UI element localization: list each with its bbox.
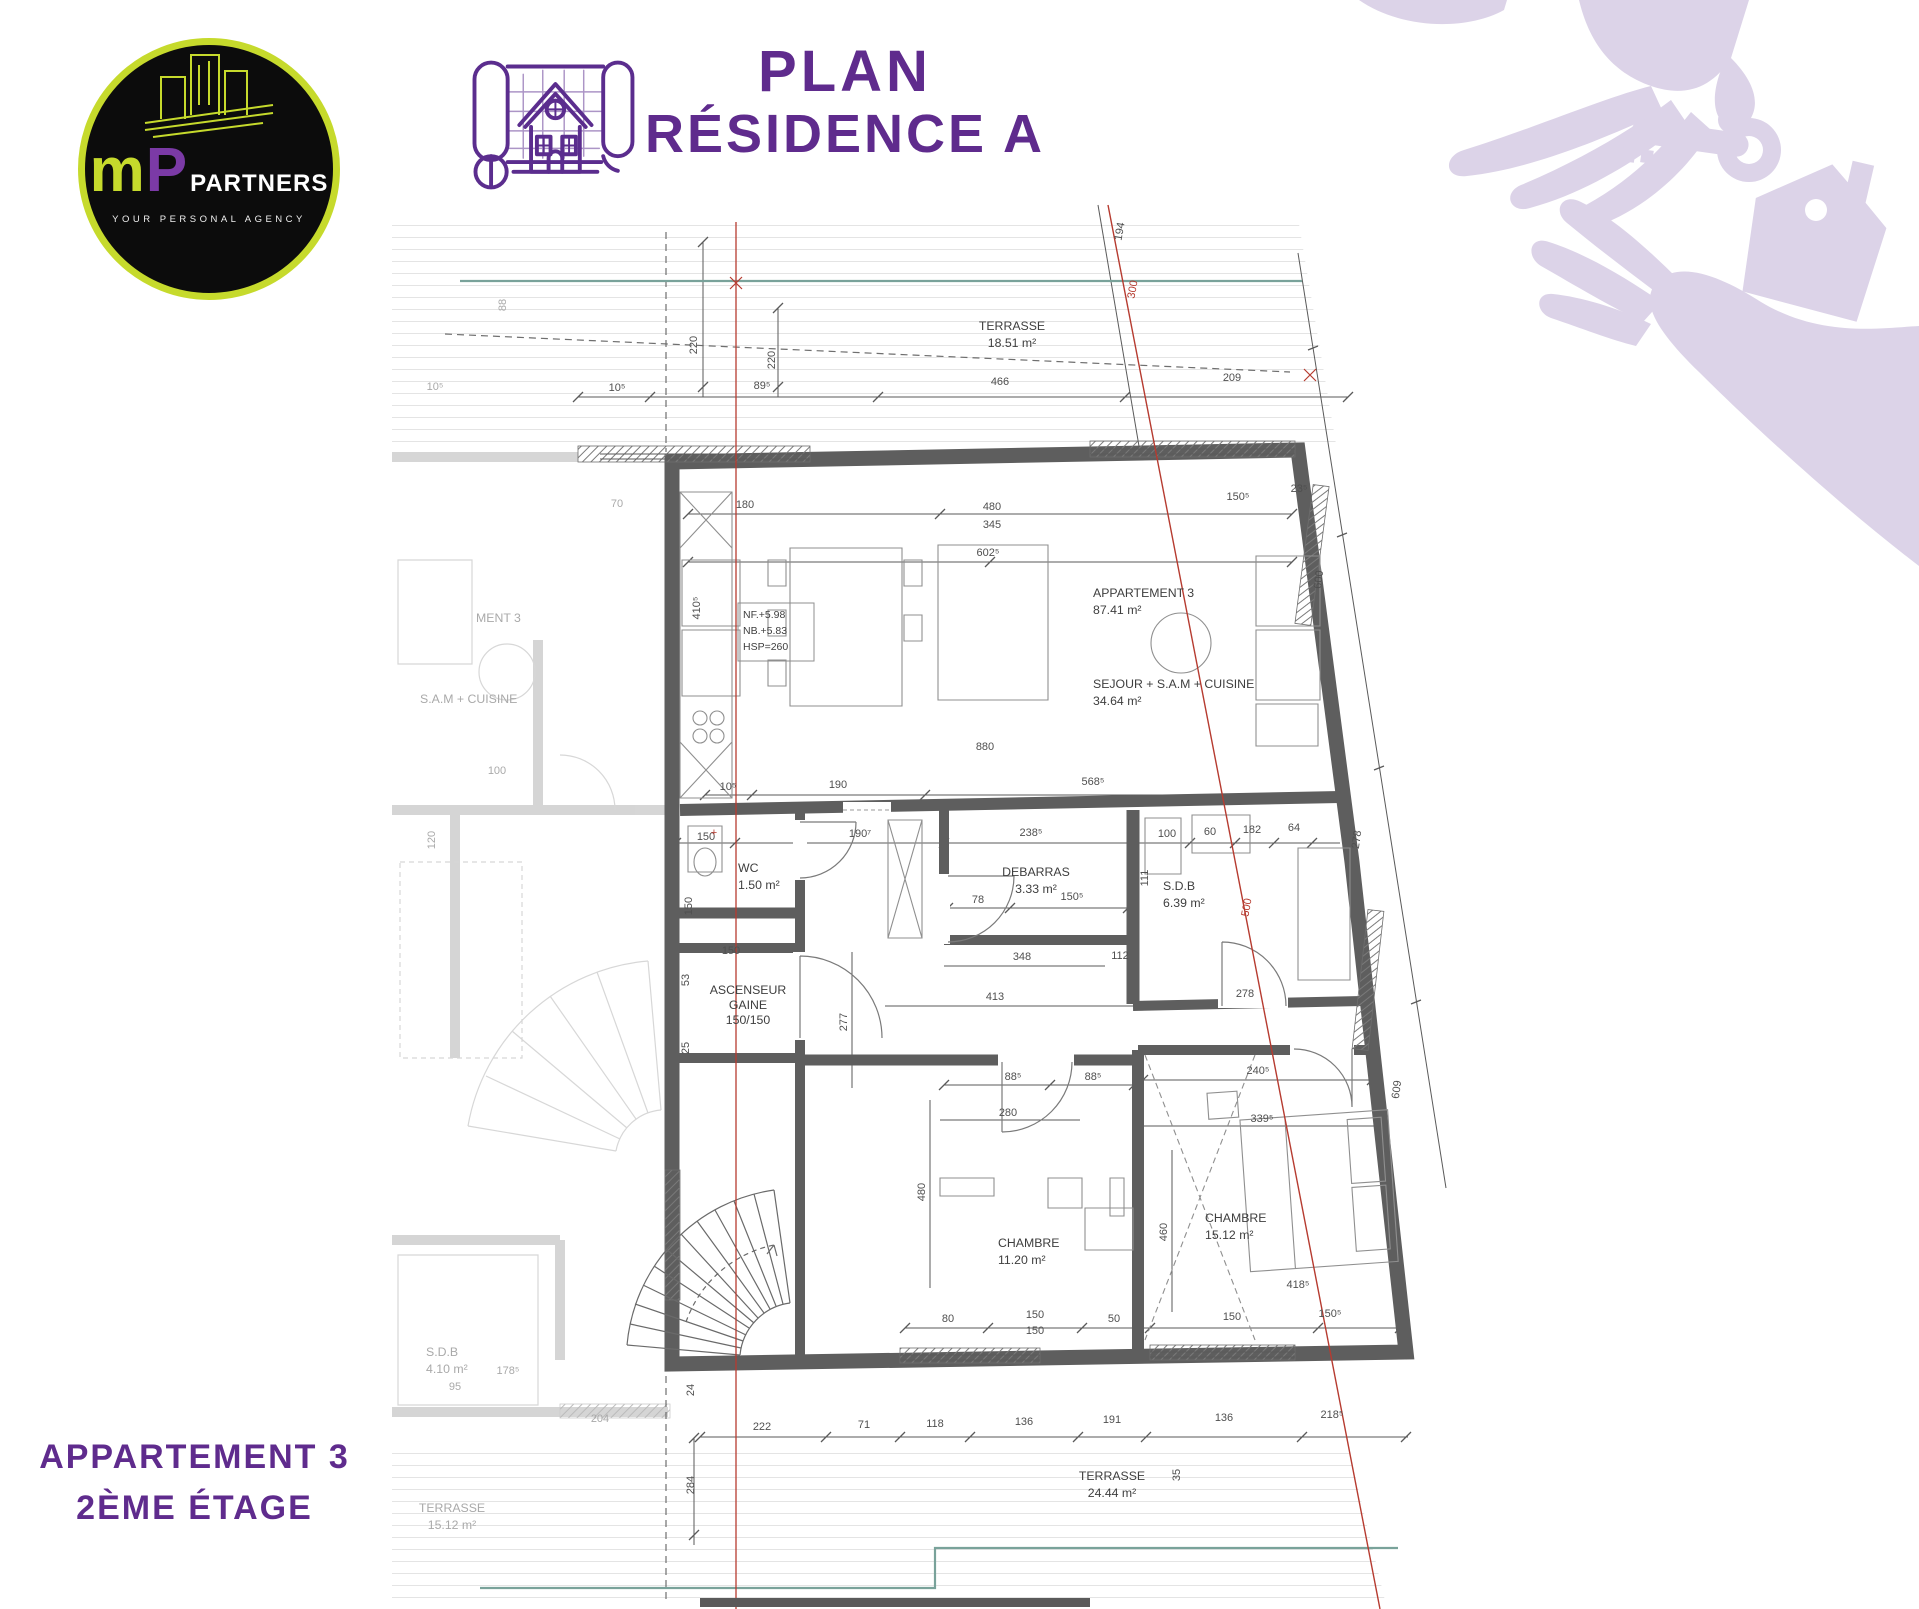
dim-label: 220 (688, 336, 700, 354)
title-line-2: RÉSIDENCE A (620, 103, 1070, 165)
apartment-caption: APPARTEMENT 3 2ÈME ÉTAGE (22, 1438, 367, 1528)
plan-labels: 10⁵89⁵4662092202201943008810⁵18048034560… (419, 221, 1404, 1532)
logo-building-icon (139, 45, 279, 141)
dim-label: 10⁵ (427, 381, 444, 393)
dim-label: 460 (1158, 1223, 1170, 1241)
room-label: ASCENSEUR (710, 983, 787, 997)
dim-label: 150 (1026, 1309, 1044, 1321)
dim-label: 150⁵ (1319, 1308, 1342, 1320)
logo-letter-p: P (146, 135, 187, 206)
dim-label: 238⁵ (1020, 827, 1043, 839)
dim-label: 10⁵ (609, 382, 626, 394)
dim-label: 190 (829, 779, 847, 791)
room-label: TERRASSE (419, 1501, 485, 1515)
room-label: 6.39 m² (1163, 896, 1205, 910)
room-label: 87.41 m² (1093, 603, 1142, 617)
dim-label: 602⁵ (977, 547, 1000, 559)
dim-label: 100 (488, 765, 506, 777)
dim-label: 88⁵ (1085, 1071, 1102, 1083)
room-label: 150/150 (726, 1013, 771, 1027)
room-label: 24.44 m² (1088, 1486, 1137, 1500)
dim-label: 150 (1223, 1311, 1241, 1323)
dim-label: 413 (986, 991, 1004, 1003)
dim-label: 80 (942, 1313, 954, 1325)
dim-label: 480 (916, 1183, 928, 1201)
dim-label: 10⁵ (720, 781, 737, 793)
room-label: CHAMBRE (998, 1236, 1060, 1250)
room-label: S.D.B (1163, 879, 1195, 893)
room-label: S.A.M + CUISINE (420, 692, 517, 706)
room-label: SEJOUR + S.A.M + CUISINE (1093, 677, 1254, 691)
room-label: 4.10 m² (426, 1362, 468, 1376)
dim-label: 178⁵ (497, 1365, 520, 1377)
staircase (627, 1190, 790, 1355)
dim-label: 150 (683, 897, 695, 915)
dim-label: 280 (999, 1107, 1017, 1119)
dim-label: 209 (1223, 372, 1241, 384)
room-label: DEBARRAS (1002, 865, 1070, 879)
dim-label: 609 (1390, 1080, 1404, 1100)
logo-partners-text: PARTNERS (190, 170, 328, 198)
dim-label: 78 (972, 894, 984, 906)
site-boundary-teal (460, 281, 1398, 1588)
dim-label: 53 (680, 974, 692, 986)
dim-label: 180 (736, 499, 754, 511)
title-line-1: PLAN (620, 42, 1070, 103)
room-label: APPARTEMENT 3 (1093, 586, 1194, 600)
dim-label: 278 (1236, 988, 1254, 1000)
dim-label: 50 (1108, 1313, 1120, 1325)
dim-label: 150⁵ (1061, 891, 1084, 903)
wall-openings (793, 802, 1354, 1066)
dim-label: 339⁵ (1251, 1113, 1274, 1125)
dim-label: 218⁵ (1321, 1409, 1344, 1421)
room-label: NB.+5.83 (743, 625, 787, 637)
room-label: GAINE (729, 998, 767, 1012)
room-label: CHAMBRE (1205, 1211, 1267, 1225)
dim-label: 88 (497, 299, 509, 311)
room-label: TERRASSE (1079, 1469, 1145, 1483)
caption-line-2: 2ÈME ÉTAGE (22, 1489, 367, 1528)
dim-label: 112 (1111, 950, 1129, 962)
dim-label: 277 (838, 1013, 850, 1031)
dim-label: 345 (983, 519, 1001, 531)
dim-label: 278 (1350, 830, 1364, 850)
dim-label: 222 (753, 1421, 771, 1433)
dim-label: 348 (1013, 951, 1031, 963)
dim-label: 300 (1126, 279, 1141, 299)
dim-label: 95 (449, 1381, 461, 1393)
dim-label: 136 (1215, 1412, 1233, 1424)
room-label: 1.50 m² (738, 878, 780, 892)
bottom-cut-wall (700, 1598, 1090, 1607)
ghost-apartment (392, 457, 670, 1418)
dim-label: 190⁷ (849, 828, 871, 840)
axis-dashed-lines (445, 232, 1290, 1604)
dim-label: 71 (858, 1419, 870, 1431)
caption-line-1: APPARTEMENT 3 (22, 1438, 367, 1477)
dim-label: 118 (926, 1418, 944, 1430)
dim-label: 88⁵ (1005, 1071, 1022, 1083)
dim-label: 568⁵ (1082, 776, 1105, 788)
dim-label: 136 (1015, 1416, 1033, 1428)
dim-label: 35 (1171, 1469, 1183, 1481)
room-label: 15.12 m² (428, 1518, 477, 1532)
page-title: PLAN RÉSIDENCE A (620, 42, 1070, 165)
room-label: WC (738, 861, 759, 875)
dim-label: 24 (685, 1384, 697, 1396)
dim-label: 500 (1240, 897, 1255, 917)
room-label: 11.20 m² (998, 1253, 1046, 1267)
agency-logo: m P PARTNERS YOUR PERSONAL AGENCY (78, 38, 340, 300)
dim-label: 194 (1113, 221, 1128, 241)
dim-label: 418⁵ (1287, 1279, 1310, 1291)
dim-label: 480 (983, 501, 1001, 513)
room-label: 15.12 m² (1205, 1228, 1254, 1242)
dim-label: 120 (426, 831, 438, 849)
dim-label: 150 (1026, 1325, 1044, 1337)
walls (672, 450, 1406, 1364)
dim-label: 191 (1103, 1414, 1121, 1426)
dim-label: 25 (680, 1042, 692, 1054)
hands-key-illustration (1279, 0, 1919, 580)
dim-label: 150⁵ (1227, 491, 1250, 503)
room-label: 34.64 m² (1093, 694, 1142, 708)
dim-label: 89⁵ (754, 380, 771, 392)
dim-label: 70 (611, 498, 623, 510)
dim-label: 240⁵ (1247, 1065, 1270, 1077)
room-label: MENT 3 (476, 611, 521, 625)
dim-label: 150 (722, 945, 740, 957)
dim-label: 204 (591, 1413, 609, 1425)
room-label: TERRASSE (979, 319, 1045, 333)
dim-label: 100 (1158, 828, 1176, 840)
dim-label: 111 (1139, 870, 1151, 887)
flyer-page: { "header": { "title_line1": "PLAN", "ti… (0, 0, 1919, 1609)
dim-label: 64 (1288, 822, 1300, 834)
room-label: NF.+5.98 (743, 609, 785, 621)
dim-label: 220 (766, 351, 778, 369)
dim-label: 880 (976, 741, 994, 753)
logo-letter-m: m (90, 135, 146, 206)
dim-label: 284 (685, 1476, 697, 1494)
room-label: HSP=260 (743, 641, 788, 653)
dim-label: 182 (1243, 824, 1261, 836)
room-label: 18.51 m² (988, 336, 1037, 350)
room-label: S.D.B (426, 1345, 458, 1359)
dim-label: 410⁵ (691, 597, 703, 620)
dim-label: 466 (991, 376, 1009, 388)
room-label: 3.33 m² (1015, 882, 1057, 896)
logo-tagline: YOUR PERSONAL AGENCY (112, 214, 306, 225)
dim-label: + (711, 827, 717, 839)
dim-label: 60 (1204, 826, 1216, 838)
